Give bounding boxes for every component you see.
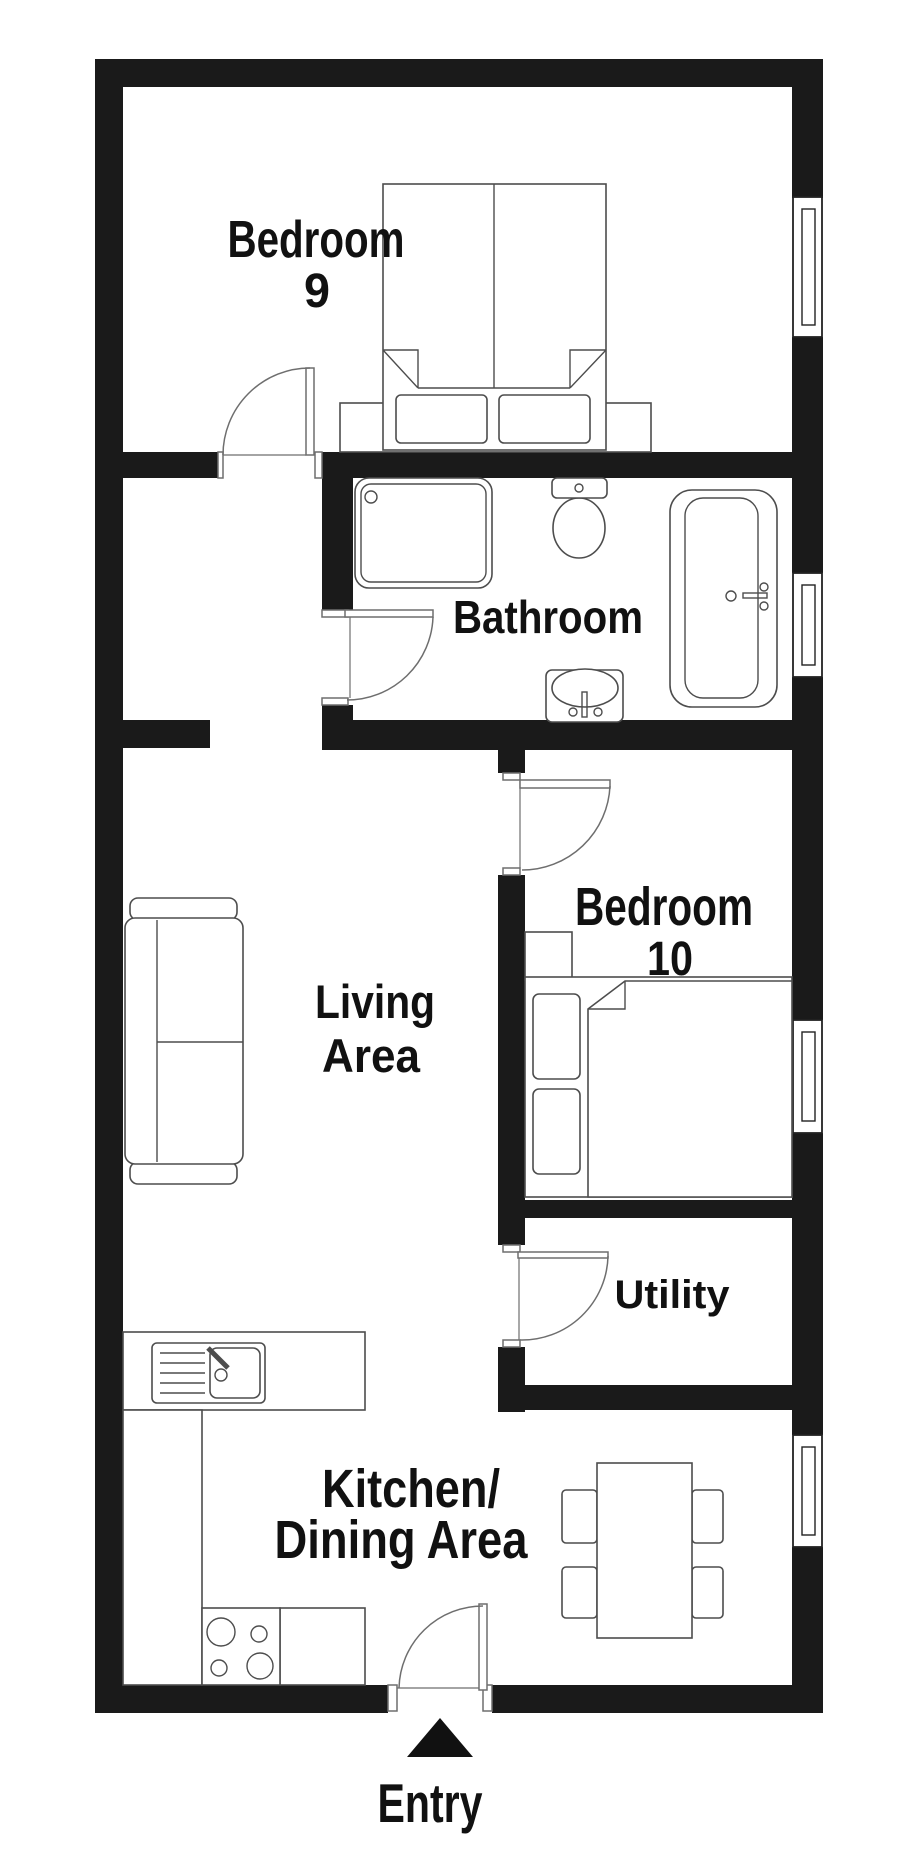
dining-set — [562, 1463, 723, 1638]
utility-label: Utility — [615, 1273, 731, 1317]
door-swing — [522, 786, 610, 870]
door-leaf — [306, 368, 314, 455]
door-threshold — [218, 452, 223, 478]
bedroom9-door — [218, 368, 322, 478]
bed9-pillow-right — [499, 395, 590, 443]
utility-door — [503, 1245, 608, 1347]
bathroom-window — [793, 573, 822, 677]
dining-chair — [562, 1490, 597, 1543]
dining-chair — [562, 1567, 597, 1618]
bedroom10-label-line2: 10 — [647, 933, 693, 986]
basin-bowl — [552, 669, 618, 707]
bedside-table — [525, 932, 572, 980]
sofa-armrest-top — [130, 898, 237, 920]
bedroom9-label-line2: 9 — [304, 265, 330, 318]
door-threshold — [503, 1245, 520, 1252]
living-label-line2: Area — [322, 1029, 421, 1082]
wall-divider-a — [498, 750, 525, 773]
toilet-bowl — [553, 498, 605, 558]
sofa-body — [125, 918, 243, 1164]
door-threshold — [503, 1340, 520, 1347]
bathroom-label: Bathroom — [453, 591, 643, 643]
door-threshold — [315, 452, 322, 478]
counter-left — [123, 1410, 202, 1685]
bed10-blanket — [588, 981, 792, 1197]
dining-chair — [692, 1567, 723, 1618]
bedroom9-label-line1: Bedroom — [228, 211, 405, 269]
entry-door — [388, 1604, 492, 1711]
toilet — [552, 478, 607, 558]
wall-right-2 — [792, 337, 823, 573]
door-swing — [347, 617, 433, 700]
wall-hall-stub — [123, 720, 210, 748]
wall-top — [95, 59, 823, 87]
door-threshold — [388, 1685, 397, 1711]
door-threshold — [322, 610, 348, 617]
dining-chair — [692, 1490, 723, 1543]
bathroom-door — [322, 610, 433, 705]
wall-divider-c — [498, 1218, 525, 1245]
sofa-armrest-bottom — [130, 1162, 237, 1184]
wall-divider-b — [498, 875, 525, 1218]
kitchen-sink — [152, 1343, 265, 1403]
wall-bathroom-left — [322, 478, 353, 610]
dining-table — [597, 1463, 692, 1638]
stove-hob — [202, 1608, 280, 1685]
door-swing — [399, 1606, 483, 1688]
entry-arrow — [407, 1718, 473, 1757]
wall-bathroom-bottom — [322, 720, 800, 750]
bed10-pillow-1 — [533, 994, 580, 1079]
bed9-pillow-left — [396, 395, 487, 443]
bed10-pillow-2 — [533, 1089, 580, 1174]
door-leaf — [520, 780, 610, 788]
bedroom10-label-line1: Bedroom — [575, 877, 753, 937]
door-threshold — [503, 868, 520, 875]
kitchen-label-line2: Dining Area — [275, 1510, 529, 1570]
floor-plan: Bedroom 9 Bathroom Living Area Bedroom 1… — [0, 0, 915, 1861]
kitchen-window — [793, 1435, 822, 1547]
door-leaf — [345, 610, 433, 617]
wall-bedroom9-bottom-right — [322, 452, 792, 478]
wall-left — [95, 59, 123, 1713]
sofa — [125, 898, 243, 1184]
counter-bottom — [280, 1608, 365, 1685]
wall-bedroom9-bottom-left — [123, 452, 218, 478]
shower — [355, 478, 492, 588]
wash-basin — [546, 669, 623, 722]
wall-utility-bottom — [498, 1385, 823, 1410]
living-label-line1: Living — [315, 975, 435, 1028]
bathtub — [670, 490, 777, 707]
door-leaf — [479, 1604, 487, 1690]
door-swing — [520, 1256, 608, 1340]
wall-bottom-right — [492, 1685, 823, 1713]
wall-right-5 — [792, 1547, 823, 1713]
door-threshold — [322, 698, 348, 705]
wall-bottom-left — [95, 1685, 388, 1713]
wall-bedroom10-bottom — [498, 1200, 792, 1218]
wall-right-1 — [792, 59, 823, 198]
door-threshold — [503, 773, 520, 780]
bedroom9-window — [793, 197, 822, 337]
bedroom10-window — [793, 1020, 822, 1133]
door-leaf — [518, 1252, 608, 1258]
toilet-cistern — [552, 478, 607, 498]
door-swing — [223, 368, 310, 455]
entry-label: Entry — [378, 1772, 483, 1834]
bedroom10-door — [503, 773, 610, 875]
